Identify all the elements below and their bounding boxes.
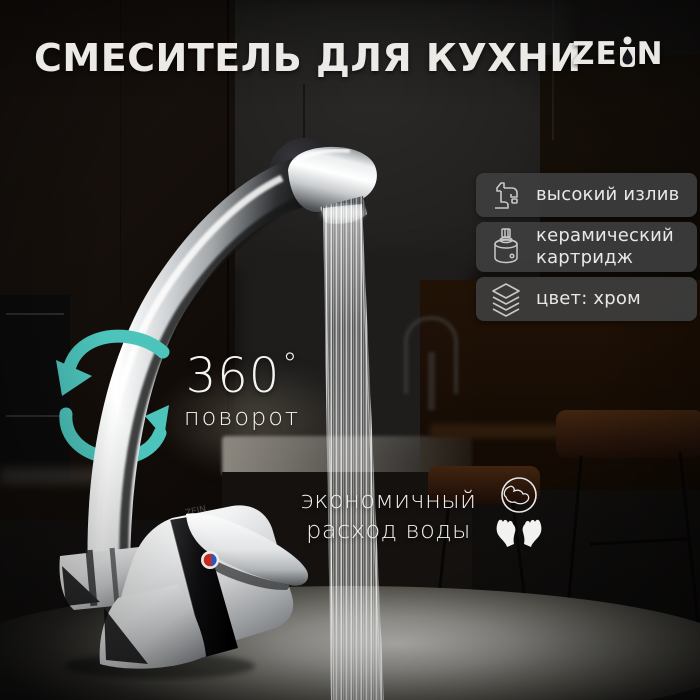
rotation-value: 360°: [172, 352, 312, 400]
badge-high-spout: высокий излив: [476, 173, 697, 217]
faucet-icon: [488, 179, 524, 211]
temperature-indicator: [201, 551, 219, 569]
page-title: СМЕСИТЕЛЬ ДЛЯ КУХНИ: [34, 36, 582, 80]
logo-prefix: ZE: [572, 36, 618, 72]
badge-ceramic-cartridge: керамический картридж: [476, 222, 697, 272]
hands: [497, 520, 542, 547]
logo-suffix: N: [637, 36, 664, 72]
badge-label: высокий излив: [536, 184, 679, 206]
eco-line2: расход воды: [276, 515, 501, 545]
rotation-callout: 360° поворот: [172, 352, 312, 431]
brand-logo: ZE N: [572, 36, 664, 72]
water-stream: [322, 204, 384, 700]
feature-badges: высокий излив керамический картридж: [476, 173, 697, 321]
degree-symbol: °: [282, 350, 298, 380]
product-card: ZEIN СМЕСИТЕЛЬ ДЛЯ КУХНИ ZE: [0, 0, 700, 700]
eco-line1: экономичный: [276, 485, 501, 515]
badge-color-chrome: цвет: хром: [476, 277, 697, 321]
badge-label: цвет: хром: [536, 288, 641, 310]
layers-icon: [488, 281, 524, 317]
badge-label: керамический картридж: [536, 225, 689, 269]
eco-callout: экономичный расход воды: [276, 485, 501, 545]
water-drop-icon: [619, 36, 636, 68]
faucet-illustration: ZEIN: [0, 0, 700, 700]
rotation-label: поворот: [172, 403, 312, 431]
hands-globe-icon: [489, 472, 549, 552]
cartridge-icon: [488, 227, 524, 267]
